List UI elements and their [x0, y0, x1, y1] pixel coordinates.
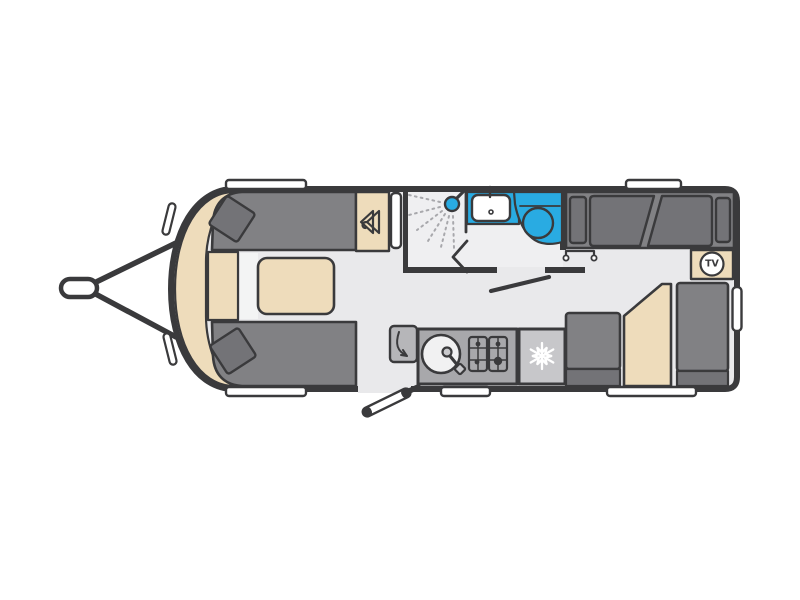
caravan-floorplan-canvas: TV: [0, 0, 800, 600]
window-bottom-mid: [441, 387, 490, 396]
wardrobe: [356, 192, 401, 251]
washroom-wall-left: [403, 188, 408, 273]
fridge: [519, 329, 565, 384]
bed-bolster-left: [570, 197, 586, 243]
corner-seat-left: [566, 313, 620, 369]
floorplan-svg: TV: [0, 0, 800, 600]
window-bottom-right: [607, 387, 696, 396]
washroom-wall-stub: [545, 267, 585, 273]
window-right-side: [733, 287, 742, 331]
window-top-right: [626, 180, 681, 189]
corner-seat-right-base: [677, 371, 728, 386]
front-chest: [208, 252, 238, 320]
hob-icon: [469, 337, 507, 371]
worktop-flap: [390, 326, 417, 362]
window-bottom-left: [226, 387, 306, 396]
sink-icon: [422, 335, 460, 373]
tv-badge: TV: [691, 250, 733, 279]
front-lounge: [208, 192, 356, 386]
corner-seat-left-base: [566, 369, 620, 386]
washroom-wall-bottom: [403, 267, 497, 273]
basin-icon: [472, 195, 510, 221]
lounge-table: [258, 258, 334, 314]
bed-bolster-right: [716, 198, 730, 242]
tow-hitch-icon: [61, 243, 176, 337]
toilet-icon: [523, 208, 553, 238]
shower-head-icon: [445, 197, 459, 211]
window-top-left: [226, 180, 306, 189]
tv-label: TV: [705, 259, 719, 270]
floor-strip: [240, 253, 258, 319]
window-front-upper: [162, 203, 177, 236]
corner-seat-right: [677, 283, 728, 371]
entrance-door: [358, 385, 418, 418]
wardrobe-mirror-slot: [391, 193, 401, 248]
